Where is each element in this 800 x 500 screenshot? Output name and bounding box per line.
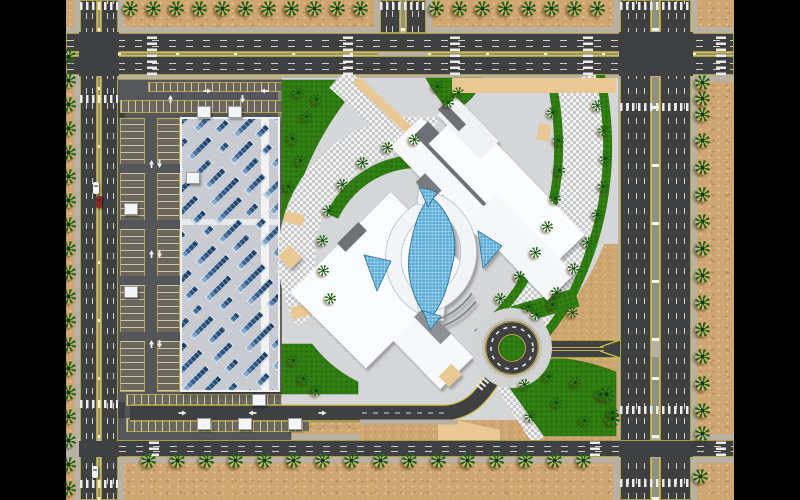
palm-tree <box>228 453 243 468</box>
palm-tree <box>568 263 579 274</box>
palm-tree <box>330 1 345 16</box>
intersection-southeast <box>619 441 693 457</box>
palm-tree <box>146 1 161 16</box>
palm-tree <box>284 1 299 16</box>
parking-shelter <box>238 418 252 430</box>
palm-tree <box>431 453 446 468</box>
palm-tree <box>695 241 710 256</box>
palm-tree <box>518 453 533 468</box>
intersection-northwest <box>79 32 119 76</box>
crosswalk-west-road <box>80 400 118 408</box>
palm-tree <box>695 187 710 202</box>
parking-shelter <box>288 418 302 430</box>
palm-tree <box>551 287 562 298</box>
palm-tree <box>318 265 329 276</box>
palm-tree <box>453 87 464 98</box>
crosswalk-west-road <box>80 95 118 103</box>
palm-tree <box>432 81 443 92</box>
palm-tree <box>547 299 558 310</box>
parking-shelter <box>186 172 200 184</box>
palm-tree <box>550 193 561 204</box>
palm-tree <box>286 453 301 468</box>
palm-tree <box>695 91 710 106</box>
palm-tree <box>695 295 710 310</box>
parking-shelter <box>228 106 242 118</box>
roundabout <box>472 308 552 388</box>
palm-tree <box>695 160 710 175</box>
palm-tree <box>452 1 467 16</box>
palm-tree <box>695 75 710 90</box>
palm-tree <box>695 349 710 364</box>
palm-tree <box>460 453 475 468</box>
palm-tree <box>298 373 309 384</box>
median-east-road <box>651 357 660 438</box>
median-top-road <box>693 52 734 56</box>
letterbox-right <box>734 0 800 500</box>
parking-shelter <box>197 106 211 118</box>
palm-tree <box>579 415 590 426</box>
crosswalk-north-stub <box>380 2 426 10</box>
palm-tree <box>382 142 393 153</box>
palm-tree <box>523 301 534 312</box>
intersection-southwest <box>79 441 119 457</box>
palm-tree <box>373 453 388 468</box>
palm-tree <box>344 453 359 468</box>
palm-tree <box>530 247 541 258</box>
palm-tree <box>542 221 553 232</box>
palm-tree <box>337 179 348 190</box>
crosswalk-east-road <box>620 2 691 10</box>
palm-tree <box>554 165 565 176</box>
palm-tree <box>598 181 609 192</box>
palm-tree <box>553 135 564 146</box>
crosswalk-top-road <box>583 33 593 75</box>
palm-tree <box>582 237 593 248</box>
palm-tree <box>544 1 559 16</box>
palm-tree <box>567 307 578 318</box>
palm-tree <box>592 209 603 220</box>
car <box>92 466 98 478</box>
palm-tree <box>402 453 417 468</box>
crosswalk-bottom-road <box>716 441 726 456</box>
palm-tree <box>695 268 710 283</box>
parking-shelter <box>124 286 138 298</box>
crosswalk-top-road <box>716 33 726 75</box>
palm-tree <box>287 133 298 144</box>
palm-tree <box>443 97 454 108</box>
palm-tree <box>301 111 312 122</box>
palm-tree <box>238 1 253 16</box>
palm-tree <box>353 1 368 16</box>
palm-tree <box>693 469 708 484</box>
palm-tree <box>547 453 562 468</box>
parking-shelter <box>124 203 138 215</box>
palm-tree <box>695 426 710 441</box>
palm-tree <box>531 309 542 320</box>
palm-tree <box>323 205 334 216</box>
palm-tree <box>325 293 336 304</box>
palm-tree <box>695 403 710 418</box>
palm-tree <box>489 453 504 468</box>
palm-tree <box>215 1 230 16</box>
palm-tree <box>295 155 306 166</box>
palm-tree <box>409 134 420 145</box>
palm-tree <box>521 1 536 16</box>
palm-tree <box>123 1 138 16</box>
palm-tree <box>429 1 444 16</box>
palm-tree <box>695 376 710 391</box>
palm-tree <box>498 1 513 16</box>
crosswalk-top-road <box>450 33 460 75</box>
crosswalk-west-road <box>80 2 118 10</box>
median-top-road <box>118 52 378 56</box>
palm-tree <box>547 107 558 118</box>
palm-tree <box>695 133 710 148</box>
palm-tree <box>514 271 525 282</box>
palm-tree <box>293 87 304 98</box>
palm-tree <box>600 153 611 164</box>
palm-tree <box>607 407 618 418</box>
palm-tree <box>570 377 581 388</box>
crosswalk-west-road <box>80 480 118 488</box>
parking-shelter <box>252 394 266 406</box>
palm-tree <box>169 1 184 16</box>
palm-tree <box>598 125 609 136</box>
palm-tree <box>257 453 272 468</box>
palm-tree <box>519 379 530 390</box>
intersection-northeast <box>619 32 693 76</box>
car <box>96 196 102 208</box>
palm-tree <box>543 371 554 382</box>
crosswalk-bottom-road <box>590 441 600 456</box>
palm-tree <box>141 453 156 468</box>
site-plan-render <box>0 0 800 500</box>
crosswalk-east-road <box>620 406 691 414</box>
crosswalk-east-road <box>620 479 691 487</box>
palm-tree <box>551 397 562 408</box>
palm-tree <box>525 411 536 422</box>
palm-tree <box>317 235 328 246</box>
palm-tree <box>311 385 322 396</box>
palm-tree <box>311 94 322 105</box>
median-west-road <box>97 458 101 500</box>
palm-tree <box>199 453 214 468</box>
palm-tree <box>695 107 710 122</box>
median-west-road <box>97 77 101 438</box>
palm-tree <box>695 322 710 337</box>
crosswalk-east-road <box>620 103 691 111</box>
palm-tree <box>595 389 606 400</box>
palm-tree <box>283 181 294 192</box>
letterbox-left <box>0 0 66 500</box>
tan-walk-north <box>452 78 616 93</box>
palm-tree <box>307 1 322 16</box>
car <box>93 182 99 194</box>
palm-tree <box>261 1 276 16</box>
parking-shelter <box>197 418 211 430</box>
palm-tree <box>590 1 605 16</box>
palm-tree <box>592 100 603 111</box>
palm-tree <box>192 1 207 16</box>
median-east-road <box>651 77 660 341</box>
palm-tree <box>495 293 506 304</box>
palm-tree <box>475 1 490 16</box>
roundabout-grass-center <box>500 336 525 361</box>
palm-tree <box>695 214 710 229</box>
palm-tree <box>357 157 368 168</box>
palm-tree <box>576 453 591 468</box>
palm-tree <box>315 453 330 468</box>
crosswalk-top-road <box>147 33 157 75</box>
crosswalk-top-road <box>343 33 353 75</box>
palm-tree <box>567 1 582 16</box>
palm-tree <box>170 453 185 468</box>
palm-tree <box>288 355 299 366</box>
